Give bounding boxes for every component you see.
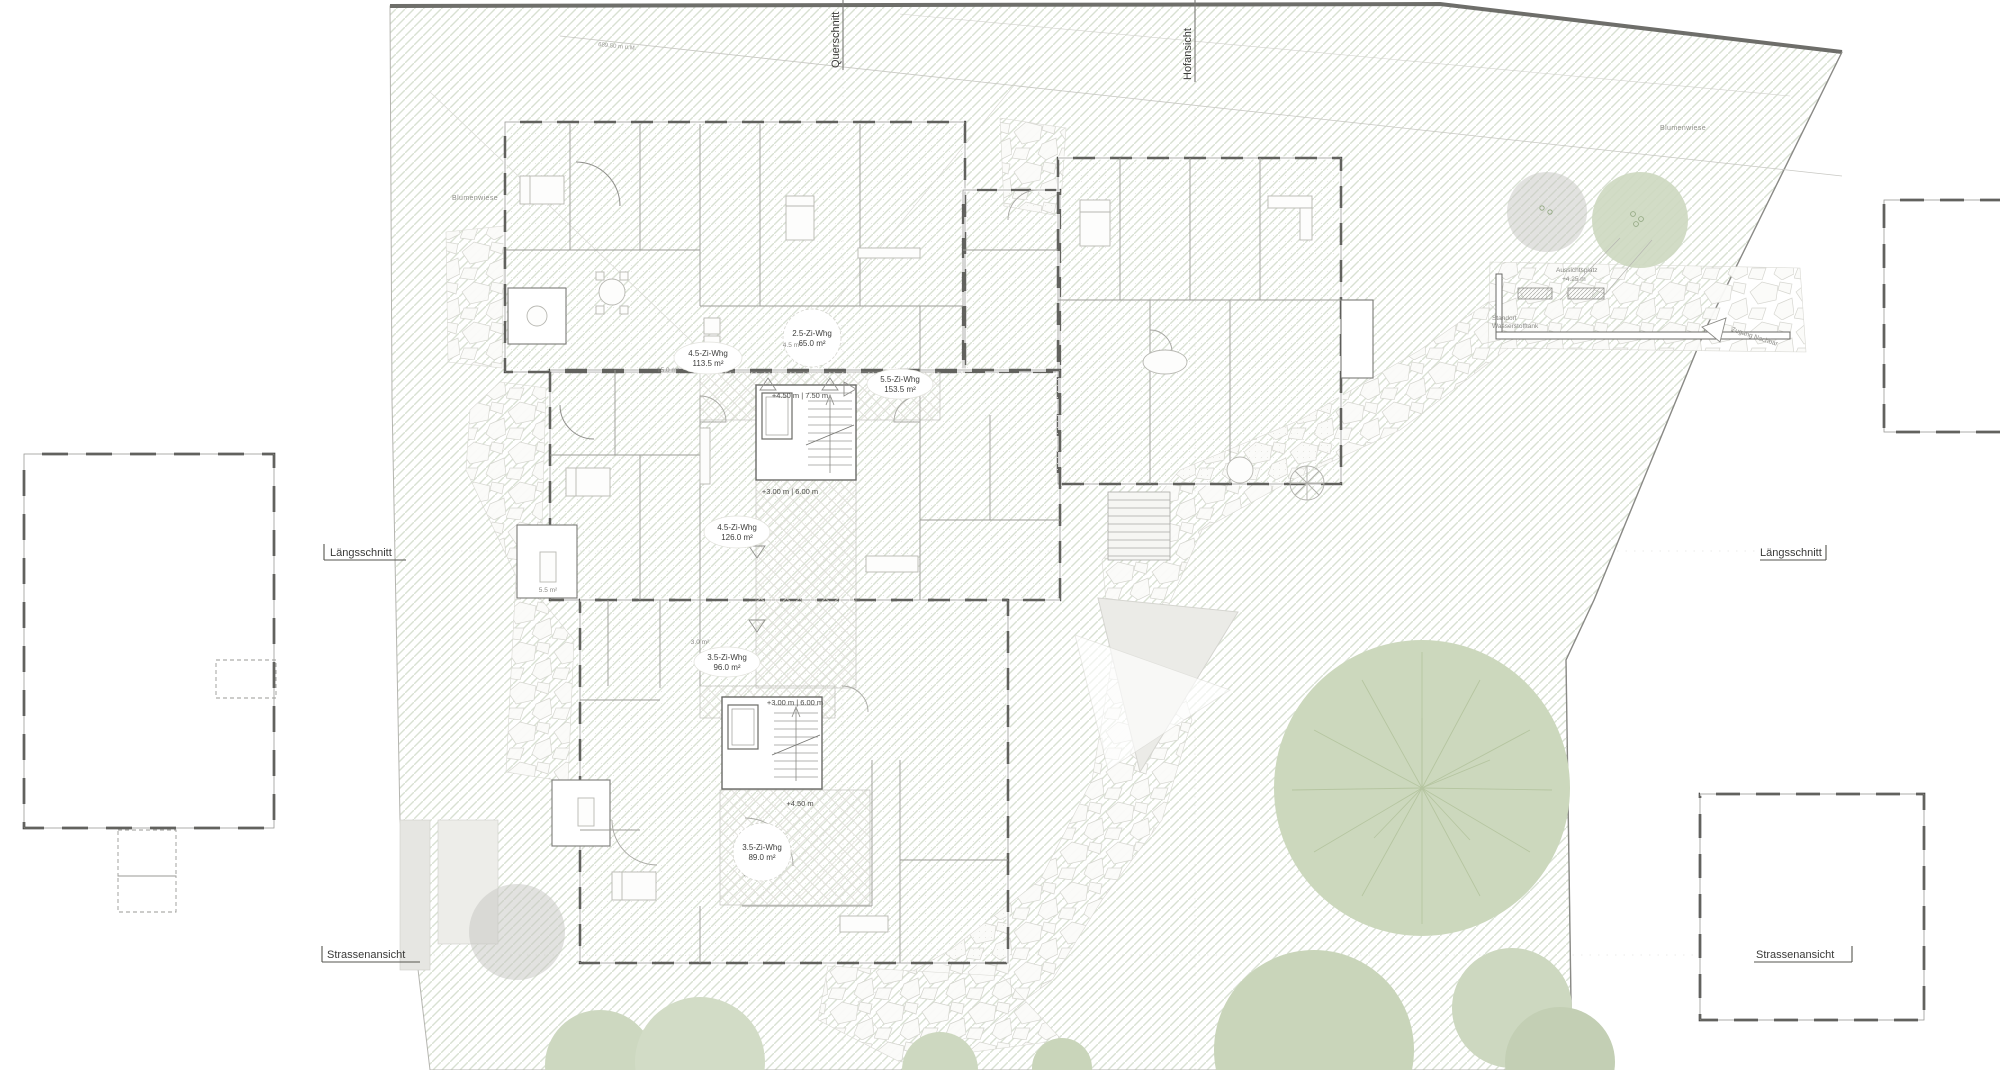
querschnitt-marker: Querschnitt <box>830 12 842 68</box>
bed <box>566 468 610 496</box>
laengsschnitt-right-marker: Längsschnitt <box>1760 547 1822 559</box>
balcony <box>1341 300 1373 378</box>
apartment-label-6: 3.5-Zi-Whg 89.0 m² <box>733 823 791 881</box>
apartment-label-5: 3.5-Zi-Whg 96.0 m² <box>694 647 760 677</box>
bed <box>520 176 564 204</box>
bistro-table <box>527 306 547 326</box>
svg-text:3.5-Zi-Whg: 3.5-Zi-Whg <box>742 843 782 852</box>
bench <box>1568 288 1604 299</box>
kitchen-counter <box>858 248 920 258</box>
neighbor-building-southeast <box>1700 794 1924 1020</box>
svg-text:153.5 m²: 153.5 m² <box>884 385 916 394</box>
room-area-label: 4.5 m² <box>783 342 802 349</box>
table <box>840 916 888 932</box>
site-plan-drawing: Aussichtsplatz +4.25 m Standort Wasserst… <box>0 0 2000 1070</box>
terrace-steps <box>1108 492 1170 560</box>
svg-text:2.5-Zi-Whg: 2.5-Zi-Whg <box>792 329 832 338</box>
standort-label-line1: Standort <box>1492 315 1517 322</box>
svg-text:3.5-Zi-Whg: 3.5-Zi-Whg <box>707 653 747 662</box>
lounge-chair <box>578 798 594 826</box>
sofa <box>1268 196 1312 208</box>
room-area-label: 5.5 m² <box>539 587 558 594</box>
room-area-label: 15.0 m² <box>657 367 680 374</box>
level-label-2: +3.00 m | 6.00 m <box>762 487 818 496</box>
apartment-label-3: 5.5-Zi-Whg 153.5 m² <box>867 369 933 399</box>
blumenwiese-left-label: Blumenwiese <box>452 195 498 202</box>
wing-connector <box>963 190 1060 372</box>
svg-text:4.5-Zi-Whg: 4.5-Zi-Whg <box>688 349 728 358</box>
path-west <box>446 226 504 368</box>
neighbor-building-northeast <box>1884 200 2000 432</box>
bench <box>1518 288 1552 299</box>
svg-text:5.5-Zi-Whg: 5.5-Zi-Whg <box>880 375 920 384</box>
lounge-chair <box>540 552 556 582</box>
dining-table <box>1143 350 1187 374</box>
tree-large <box>1274 640 1570 936</box>
bed <box>786 196 814 240</box>
svg-text:89.0 m²: 89.0 m² <box>748 853 775 862</box>
blumenwiese-right-label: Blumenwiese <box>1660 125 1706 132</box>
strassenansicht-right-marker: Strassenansicht <box>1756 949 1834 961</box>
aussichtsplatz-label: Aussichtsplatz <box>1556 267 1598 274</box>
apartment-label-1: 4.5-Zi-Whg 113.5 m² <box>674 342 742 374</box>
neighbor-building-west <box>24 454 276 912</box>
stair-core-lower <box>722 697 822 789</box>
kitchen-counter <box>700 428 710 484</box>
level-label-4: +4.50 m <box>786 799 813 808</box>
tree-gray <box>469 884 565 980</box>
bed <box>1080 200 1110 246</box>
apartment-label-4: 4.5-Zi-Whg 126.0 m² <box>704 516 770 548</box>
table <box>866 556 918 572</box>
parasol <box>1290 466 1324 500</box>
hofansicht-marker: Hofansicht <box>1182 28 1194 80</box>
room-area-label: 3.0 m² <box>691 639 710 646</box>
level-label-3: +3.00 m | 6.00 m <box>767 698 823 707</box>
aussichtsplatz-level: +4.25 m <box>1562 276 1586 283</box>
bed <box>612 872 656 900</box>
standort-label-line2: Wasserstofftank <box>1492 323 1539 330</box>
strassenansicht-left-marker: Strassenansicht <box>327 949 405 961</box>
tree-gray <box>1507 172 1587 252</box>
svg-text:4.5-Zi-Whg: 4.5-Zi-Whg <box>717 523 757 532</box>
laengsschnitt-left-marker: Längsschnitt <box>330 547 392 559</box>
apartment-label-2: 2.5-Zi-Whg 65.0 m² <box>783 309 841 367</box>
appliance <box>704 318 720 334</box>
svg-text:96.0 m²: 96.0 m² <box>713 663 740 672</box>
floor-plan-page: Aussichtsplatz +4.25 m Standort Wasserst… <box>0 0 2000 1070</box>
svg-text:65.0 m²: 65.0 m² <box>798 339 825 348</box>
round-table <box>599 279 625 305</box>
svg-text:126.0 m²: 126.0 m² <box>721 533 753 542</box>
level-label-1: +4.50 m | 7.50 m <box>772 391 828 400</box>
terrace-table <box>1227 457 1253 483</box>
wing-upper-left <box>505 122 965 372</box>
svg-text:113.5 m²: 113.5 m² <box>693 359 724 368</box>
